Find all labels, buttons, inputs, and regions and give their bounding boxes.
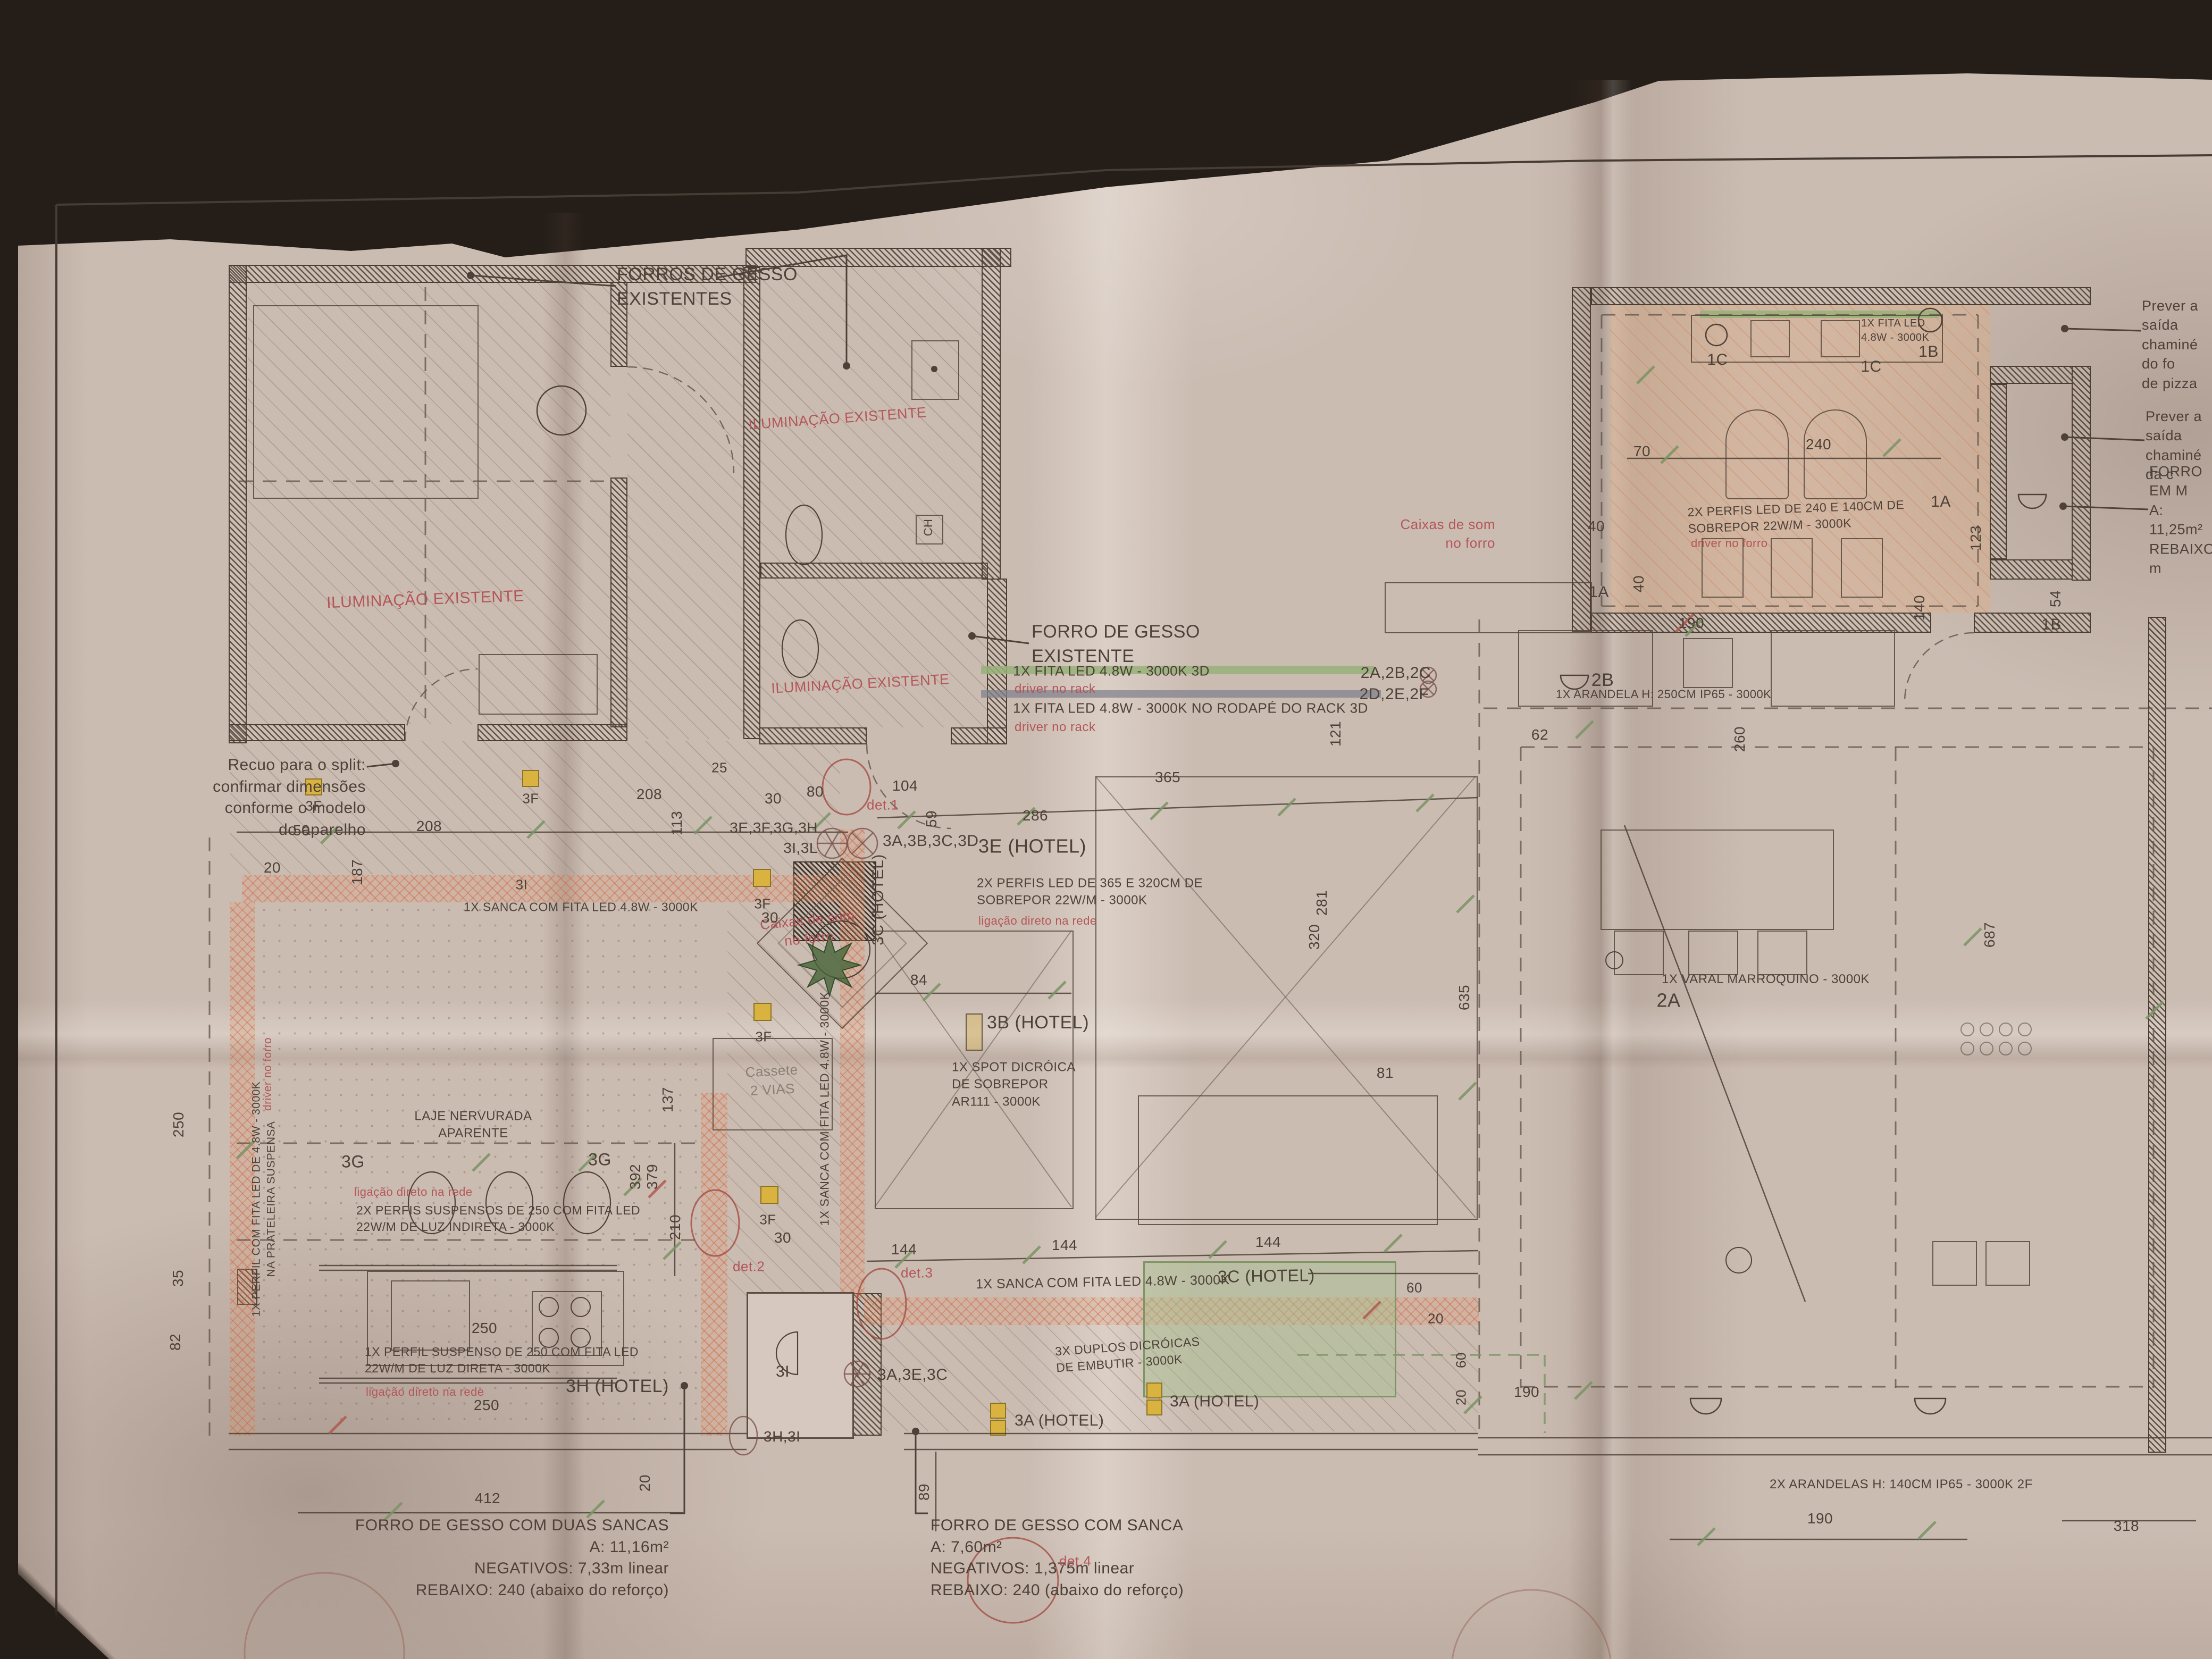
zone-3g-2: 3G [588,1148,611,1171]
dim-tick-green [1637,366,1654,383]
photographed-floor-plan: FORROS DE GESSO EXISTENTESILUMINAÇÃO EXI… [0,0,2212,1659]
label-sanca-vertical: 1X SANCA COM FITA LED 4.8W - 3000K [816,992,833,1226]
door-swing-arc [627,367,734,473]
label-3f: 3F [759,1210,776,1229]
dim: 412 [475,1488,500,1509]
dim-tick-green [1575,1382,1592,1399]
leader-dot [681,1382,688,1389]
note-perfil-prateleira: 1X PERFIL COM FITA LED DE 4.8W - 3000K N… [249,1082,280,1317]
toilet [786,505,822,565]
arandela-symbol [2018,495,2046,508]
label-ligacao-rede-1: ligação direto na rede [978,913,1097,929]
dim: 40 [1629,575,1649,592]
table-dot [1980,1042,1993,1055]
dim: 187 [347,859,367,885]
table-dot [1999,1042,2012,1055]
door-swing-arc [405,669,477,741]
note-perfis-365-320: 2X PERFIS LED DE 365 E 320CM DE SOBREPOR… [977,875,1203,910]
dim: 30 [761,908,778,928]
dim-tick-green [1457,895,1474,912]
plan-line [867,1251,1478,1261]
label-cassete-2-vias: Cassete 2 VIAS [745,1060,799,1100]
zone-1b-2: 1B [2041,614,2062,636]
leader-line [916,1431,928,1513]
dim: 281 [1312,890,1332,916]
table-dot [2018,1042,2031,1055]
label-driver-no-forro-2: driver no forro [261,1037,275,1111]
dim-tick-red [329,1417,346,1434]
dim-tick-red [1363,1302,1380,1319]
det-3: det.3 [901,1263,933,1282]
label-3f: 3F [755,1027,772,1046]
dim: 123 [1966,525,1986,551]
label-laje-nervurada: LAJE NERVURADA APARENTE [414,1108,532,1143]
leader-dot [968,632,976,640]
door-swing-arc [1905,633,1974,702]
det-1: det.1 [867,795,899,814]
dim: 40 [1588,516,1605,537]
dim: 208 [636,784,662,805]
zone-3a-hotel-2: 3A (HOTEL) [1170,1391,1259,1413]
dim: 54 [2046,590,2066,607]
plan-line [877,798,1478,818]
cooktop-burner [571,1297,590,1317]
note-recuo-split: Recuo para o split: confirmar dimensões … [213,755,366,841]
dim: 20 [1428,1309,1444,1328]
zone-2a: 2A [1656,988,1680,1014]
label-2d2e2f: 2D,2E,2F [1360,684,1429,706]
note-arandela-250: 1X ARANDELA H: 250CM IP65 - 3000K [1556,686,1771,702]
dim: 190 [1807,1509,1833,1529]
leader-dot [392,760,399,767]
detail-marker-circle [691,1190,739,1256]
dim: 140 [1909,595,1930,621]
shower-drain [931,366,937,372]
dim: 89 [914,1484,934,1501]
dim-tick-green [694,817,711,834]
label-3a-3e-3c: 3A,3E,3C [877,1364,948,1386]
dim: 113 [667,811,687,835]
dim: 240 [1806,434,1831,455]
dim-tick-green [1023,1246,1040,1263]
label-3e3f3g3h-3i3l: 3E,3F,3G,3H 3I,3L [730,818,818,858]
dim: 80 [807,782,824,802]
det-4: det.4 [1059,1552,1091,1570]
zone-3g-1: 3G [341,1150,365,1173]
dim: 30 [765,789,782,809]
leader-dot [2061,325,2068,332]
dim-tick-green [1278,799,1295,816]
zone-3c-hotel-bottom: 3C (HOTEL) [1218,1264,1316,1288]
dim: 25 [711,758,727,777]
leader-line [471,275,616,286]
pendant-1c [1706,324,1727,346]
dim: 365 [1155,767,1180,787]
detail-marker-circle [857,1269,906,1339]
dim-tick-green [1459,1083,1476,1100]
dim: 60 [1406,1278,1422,1297]
label-3i-sanca: 3I [516,875,528,894]
label-ch: CH [920,519,936,537]
label-2a2b2c: 2A,2B,2C [1361,663,1431,684]
leader-line [2063,506,2148,509]
sheet-border-top [56,155,2212,205]
dim: 250 [169,1112,189,1137]
dim: 687 [1980,922,2000,948]
dim-tick-green [1883,439,1900,456]
label-3f: 3F [305,797,322,815]
label-fita-1c: 1X FITA LED 4.8W - 3000K [1861,316,1929,345]
dim: 82 [165,1334,186,1351]
table-dot [2018,1023,2031,1036]
dim: 210 [665,1214,685,1240]
round-table [537,386,586,435]
table-dot [1999,1023,2012,1036]
leader-dot [467,272,474,279]
dim-tick-green [527,821,544,838]
table-dot [1961,1042,1974,1055]
dim-tick-green [1698,1528,1715,1545]
label-caixas-som-forro-1: Caixas de som no forro [1401,515,1495,552]
dim-tick-green [898,811,915,828]
dim: 286 [1023,806,1048,826]
dim: 35 [168,1270,188,1287]
plan-line [1624,825,1805,1302]
zone-1a-1: 1A [1931,491,1951,513]
label-driver-no-rack-1: driver no rack [1015,681,1095,698]
dim-tick-green [1661,446,1678,463]
leader-dot [2061,433,2068,441]
dim: 190 [1679,613,1704,633]
note-varal-marroquino: 1X VARAL MARROQUINO - 3000K [1662,971,1870,988]
note-forro-duas-sancas: FORRO DE GESSO COM DUAS SANCAS A: 11,16m… [355,1515,669,1601]
note-forros-existentes: FORROS DE GESSO EXISTENTES [617,263,798,312]
detail-marker-circle [823,759,870,815]
dim: 60 [1452,1352,1470,1368]
dim: 144 [1052,1235,1077,1255]
leader-line [2065,329,2141,331]
dim: 250 [474,1395,499,1415]
zone-3i-door: 3I [776,1361,790,1383]
zone-3h-hotel: 3H (HOTEL) [566,1375,669,1399]
dim: 137 [658,1087,678,1112]
zone-1c-1: 1C [1707,349,1728,371]
dim: 20 [635,1474,655,1492]
dim: 190 [1514,1382,1539,1402]
leader-dot [843,362,850,370]
label-fita-led-3d-2: 1X FITA LED 4.8W - 3000K NO RODAPÉ DO RA… [1013,699,1368,717]
dim-tick-green [1049,982,1066,999]
dim: 50 [293,820,310,841]
leader-dot [2059,502,2067,510]
dim: 121 [1326,721,1346,747]
dim: 144 [1255,1232,1281,1252]
arandela-symbol [1915,1398,1946,1414]
label-3a3b3c3d: 3A,3B,3C,3D [883,831,979,852]
dim: 144 [891,1239,917,1260]
label-driver-no-rack-2: driver no rack [1015,719,1095,736]
label-sanca-kitchen: 1X SANCA COM FITA LED 4.8W - 3000K [464,899,698,915]
leader-dot [912,1428,919,1435]
dim: 320 [1304,924,1325,950]
det-2: det.2 [733,1257,765,1276]
dim-tick-green [1151,802,1168,819]
dim: 260 [1730,726,1750,752]
dim-tick-green [664,1242,681,1259]
zone-3c-hotel-vertical: 3C (HOTEL) [868,854,890,945]
label-ligacao-rede-3: ligação direto na rede [366,1384,484,1400]
arandela-symbol [1690,1398,1721,1414]
label-3f: 3F [522,789,539,808]
note-forro-em: FORRO EM M A: 11,25m² REBAIXO: m [2149,462,2212,579]
zone-1c-2: 1C [1861,356,1881,378]
dim-tick-green [1576,721,1593,738]
dim-tick-green [473,1154,490,1171]
dim: 20 [1452,1389,1470,1405]
dim-tick-green [1385,1235,1402,1252]
note-perfil-suspenso: 1X PERFIL SUSPENSO DE 250 COM FITA LED 2… [365,1344,639,1377]
dim-tick-green [1964,928,1981,945]
zone-1a-2: 1A [1589,582,1609,604]
dim: 20 [264,858,281,878]
dim-tick-green [1417,794,1434,811]
varal-point [1606,952,1623,969]
zone-3b-hotel: 3B (HOTEL) [987,1011,1089,1035]
note-spot-ar111: 1X SPOT DICRÓICA DE SOBREPOR AR111 - 300… [952,1059,1076,1110]
zone-3e-hotel: 3E (HOTEL) [978,834,1086,860]
note-perfis-suspensos: 2X PERFIS SUSPENSOS DE 250 COM FITA LED … [356,1202,640,1235]
dim: 318 [2114,1516,2139,1536]
background-shadow [0,1563,117,1659]
dim: 84 [910,970,927,990]
dim-tick-green [1918,1522,1935,1539]
dim: 30 [774,1228,791,1248]
dim: 250 [472,1318,497,1338]
dim: 104 [892,776,918,796]
zone-3a-hotel-1: 3A (HOTEL) [1015,1410,1104,1432]
toilet [782,620,818,677]
table-dot [1961,1023,1974,1036]
sketch-circle [1452,1590,1611,1659]
cooktop-burner [539,1297,558,1317]
note-arandelas-140-2f: 2X ARANDELAS H: 140CM IP65 - 3000K 2F [1770,1476,2033,1493]
varal-point [1726,1247,1752,1273]
dim: 379 [642,1164,663,1189]
label-fita-led-3d-1: 1X FITA LED 4.8W - 3000K 3D [1013,661,1210,680]
dim-tick-green [2146,1002,2163,1019]
leader-line [367,764,396,767]
label-3h-3i: 3H,3I [764,1427,800,1447]
label-ligacao-rede-2: ligação direto na rede [354,1184,473,1200]
dim: 208 [416,816,442,836]
dim: 81 [1377,1063,1394,1083]
note-prever-saida-pizza: Prever a saída chaminé do fo de pizza [2142,296,2212,393]
leader-line [2065,437,2144,440]
dim: 635 [1454,985,1474,1010]
label-driver-no-forro-1: driver no forro [1691,535,1767,551]
leader-line [972,636,1029,643]
dim: 59 [921,810,942,827]
table-dot [1980,1023,1993,1036]
dim: 62 [1531,725,1548,745]
dim: 70 [1633,441,1650,462]
note-forro-sanca: FORRO DE GESSO COM SANCA A: 7,60m² NEGAT… [931,1515,1184,1601]
